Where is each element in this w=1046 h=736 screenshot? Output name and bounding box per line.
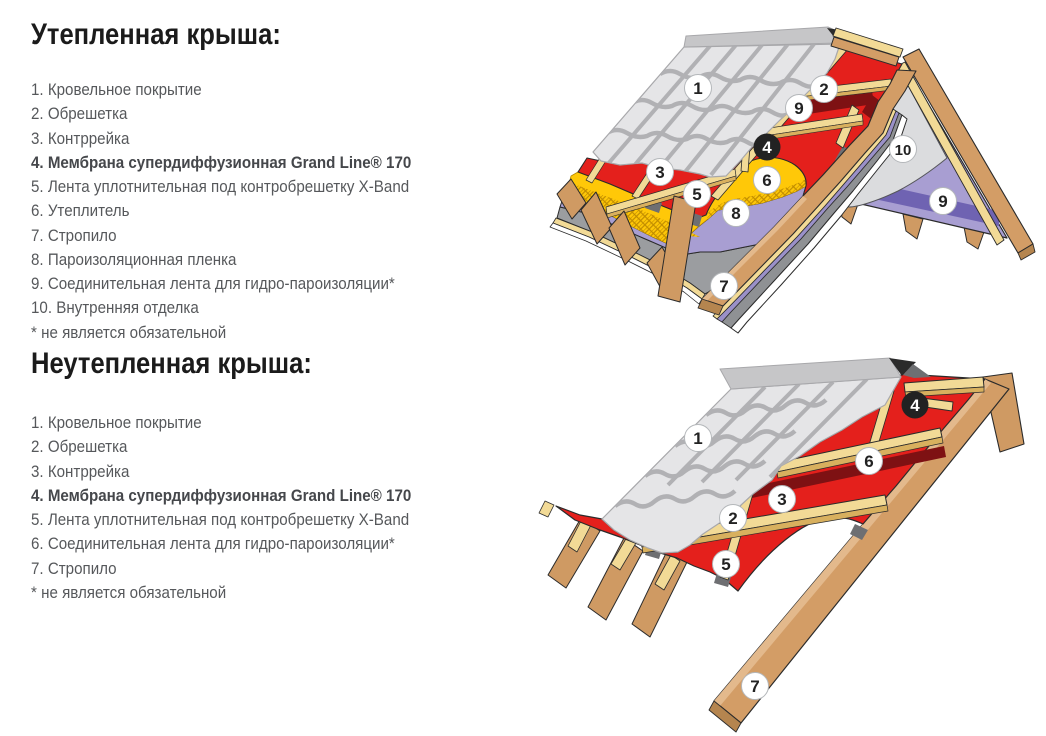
svg-text:10: 10: [895, 142, 912, 159]
svg-text:4: 4: [762, 138, 772, 157]
svg-text:5: 5: [692, 185, 701, 204]
svg-text:9: 9: [938, 192, 947, 211]
svg-text:8: 8: [731, 204, 740, 223]
svg-text:5: 5: [721, 555, 730, 574]
svg-text:6: 6: [762, 171, 771, 190]
svg-text:2: 2: [819, 80, 828, 99]
svg-text:9: 9: [794, 99, 803, 118]
svg-text:7: 7: [719, 277, 728, 296]
svg-text:3: 3: [777, 490, 786, 509]
svg-text:4: 4: [910, 396, 920, 415]
svg-text:7: 7: [750, 677, 759, 696]
svg-text:2: 2: [728, 509, 737, 528]
svg-text:3: 3: [655, 163, 664, 182]
svg-text:1: 1: [693, 79, 702, 98]
svg-text:1: 1: [693, 429, 702, 448]
svg-text:6: 6: [864, 452, 873, 471]
